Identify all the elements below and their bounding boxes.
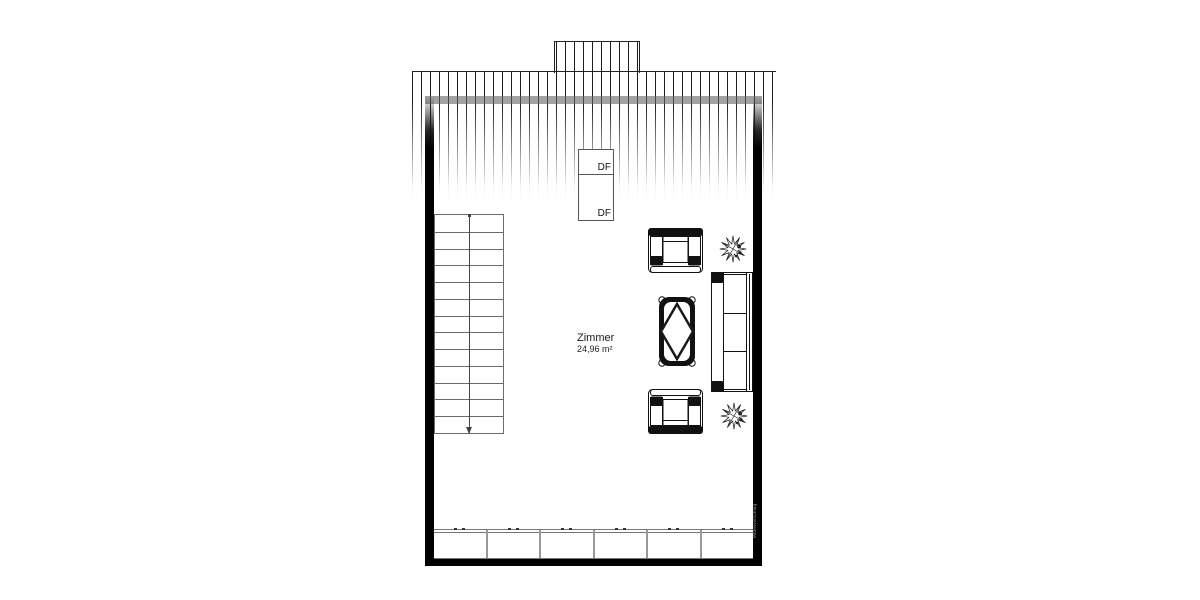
cabinet-cell (595, 530, 649, 558)
knee-wall-cabinets (434, 529, 753, 559)
cabinet-handle (561, 528, 572, 530)
skylight-divider (579, 174, 613, 175)
floor-plan: DF DF (0, 0, 1200, 600)
skylight-label-upper: DF (598, 163, 611, 173)
sofa-icon (711, 272, 753, 392)
cabinet-handle (668, 528, 679, 530)
wall-right (753, 96, 762, 566)
armchair-icon (648, 389, 703, 434)
watermark-text: Möbelvorschlag (752, 500, 762, 538)
stair-direction-line (469, 215, 470, 433)
room-name: Zimmer (577, 332, 614, 344)
coffee-table-icon (657, 295, 697, 368)
plant-icon (719, 402, 749, 430)
cabinet-cell (434, 530, 488, 558)
skylight-box: DF DF (578, 149, 614, 221)
staircase (434, 214, 504, 434)
cabinet-handle (722, 528, 733, 530)
skylight-label-lower: DF (598, 209, 611, 219)
cabinet-cell (702, 530, 754, 558)
cabinet-cell (488, 530, 542, 558)
stair-direction-arrow (466, 427, 472, 434)
stair-direction-start-dot (468, 214, 471, 217)
room-area: 24,96 m² (577, 344, 614, 355)
roof-dormer-hatch (554, 41, 640, 73)
cabinet-cell (648, 530, 702, 558)
cabinet-handle (615, 528, 626, 530)
plant-icon (718, 235, 748, 263)
cabinet-handle (454, 528, 465, 530)
top-wall-gray-band (425, 96, 762, 104)
room-label: Zimmer 24,96 m² (577, 332, 614, 355)
cabinet-handle (508, 528, 519, 530)
wall-left (425, 96, 434, 566)
armchair-icon (648, 228, 703, 273)
cabinet-cell (541, 530, 595, 558)
